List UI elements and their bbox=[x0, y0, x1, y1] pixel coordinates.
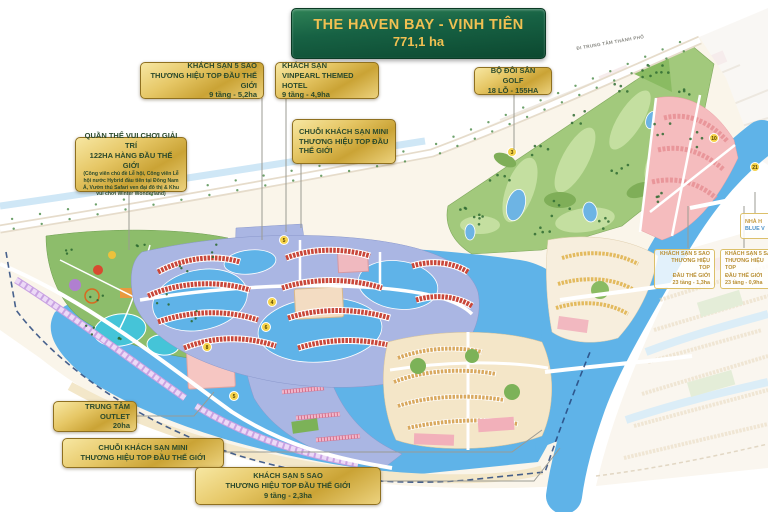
callout-line: CHUỖI KHÁCH SẠN MINI bbox=[69, 443, 217, 453]
callout-blue-label: NHÀ H BLUE V bbox=[740, 213, 768, 239]
svg-text:4: 4 bbox=[271, 300, 274, 306]
callout-outlet: TRUNG TÂM OUTLET 20ha bbox=[53, 401, 137, 432]
callout-line: ĐẦU THẾ GIỚI bbox=[659, 273, 710, 280]
callout-line: THƯƠNG HIỆU TOP bbox=[725, 258, 768, 273]
callout-line: 23 tầng - 1,3ha bbox=[659, 280, 710, 287]
callout-subtext: (Công viên chủ đề Lễ hội, Công viên Lễ h… bbox=[82, 171, 180, 197]
svg-text:5: 5 bbox=[283, 238, 286, 244]
callout-line: THẾ GIỚI bbox=[299, 146, 389, 156]
callout-line: THƯƠNG HIỆU TOP ĐẦU THẾ GIỚI bbox=[202, 481, 374, 491]
callout-hotel-23t-13ha: KHÁCH SẠN 5 SAO THƯƠNG HIỆU TOP ĐẦU THẾ … bbox=[654, 249, 715, 289]
callout-line: KHÁCH SẠN 5 SAO bbox=[202, 471, 374, 481]
callout-mini-hotels-top: CHUỖI KHÁCH SẠN MINI THƯƠNG HIỆU TOP ĐẦU… bbox=[292, 119, 396, 164]
callout-vinpearl-hotel: KHÁCH SẠN VINPEARL THEMED HOTEL 9 tầng -… bbox=[275, 62, 379, 99]
callout-line: BLUE V bbox=[745, 226, 768, 233]
callout-hotel-5sao-23ha: KHÁCH SẠN 5 SAO THƯƠNG HIỆU TOP ĐẦU THẾ … bbox=[195, 467, 381, 505]
callout-line: 9 tầng - 5,2ha bbox=[147, 90, 257, 100]
callout-line: 9 tầng - 2,3ha bbox=[202, 491, 374, 501]
callout-line: QUẦN THỂ VUI CHƠI GIẢI TRÍ bbox=[82, 131, 180, 151]
masterplan-page: 3546851021 THE HAVEN BAY - VỊNH TIÊN 771… bbox=[0, 0, 768, 512]
callout-line: KHÁCH SẠN 5 SAO bbox=[147, 61, 257, 71]
callout-line: 23 tầng - 0,9ha bbox=[725, 280, 768, 287]
callout-golf: BỘ ĐÔI SÂN GOLF 18 LỖ - 155HA bbox=[474, 67, 552, 95]
callout-line: 122HA HÀNG ĐẦU THẾ GIỚI bbox=[82, 151, 180, 171]
svg-text:5: 5 bbox=[233, 394, 236, 400]
callout-theme-park: QUẦN THỂ VUI CHƠI GIẢI TRÍ 122HA HÀNG ĐẦ… bbox=[75, 137, 187, 192]
callout-line: THƯƠNG HIỆU TOP ĐẦU THẾ GIỚI bbox=[69, 453, 217, 463]
svg-text:8: 8 bbox=[206, 345, 209, 351]
callout-line: CHUỖI KHÁCH SẠN MINI bbox=[299, 127, 389, 137]
svg-text:3: 3 bbox=[511, 150, 514, 156]
callout-line: KHÁCH SẠN 5 SAO bbox=[659, 251, 710, 258]
callout-line: ĐẦU THẾ GIỚI bbox=[725, 273, 768, 280]
callout-mini-hotels-bottom: CHUỖI KHÁCH SẠN MINI THƯƠNG HIỆU TOP ĐẦU… bbox=[62, 438, 224, 468]
callout-line: VINPEARL THEMED HOTEL bbox=[282, 71, 372, 91]
callout-hotel-5sao-52ha: KHÁCH SẠN 5 SAO THƯƠNG HIỆU TOP ĐẦU THẾ … bbox=[140, 62, 264, 99]
project-area: 771,1 ha bbox=[393, 34, 444, 50]
callout-line: THƯƠNG HIỆU TOP bbox=[659, 258, 710, 273]
callout-line: 18 LỖ - 155HA bbox=[481, 86, 545, 96]
masterplan-map: 3546851021 bbox=[0, 0, 768, 512]
south-island bbox=[383, 332, 551, 450]
callout-line: THƯƠNG HIỆU TOP ĐẦU bbox=[299, 137, 389, 147]
callout-line: BỘ ĐÔI SÂN GOLF bbox=[481, 66, 545, 86]
title-banner: THE HAVEN BAY - VỊNH TIÊN 771,1 ha bbox=[291, 8, 546, 59]
callout-line: KHÁCH SẠN 5 SAO bbox=[725, 251, 768, 258]
callout-line: NHÀ H bbox=[745, 219, 768, 226]
svg-text:21: 21 bbox=[752, 165, 758, 171]
svg-text:6: 6 bbox=[265, 325, 268, 331]
svg-text:10: 10 bbox=[711, 136, 717, 142]
project-title: THE HAVEN BAY - VỊNH TIÊN bbox=[313, 17, 523, 34]
callout-line: TRUNG TÂM OUTLET bbox=[60, 402, 130, 422]
callout-line: 20ha bbox=[60, 421, 130, 431]
callout-line: THƯƠNG HIỆU TOP ĐẦU THẾ GIỚI bbox=[147, 71, 257, 91]
callout-line: KHÁCH SẠN bbox=[282, 61, 372, 71]
callout-line: 9 tầng - 4,9ha bbox=[282, 90, 372, 100]
callout-hotel-23t-09ha: KHÁCH SẠN 5 SAO THƯƠNG HIỆU TOP ĐẦU THẾ … bbox=[720, 249, 768, 289]
